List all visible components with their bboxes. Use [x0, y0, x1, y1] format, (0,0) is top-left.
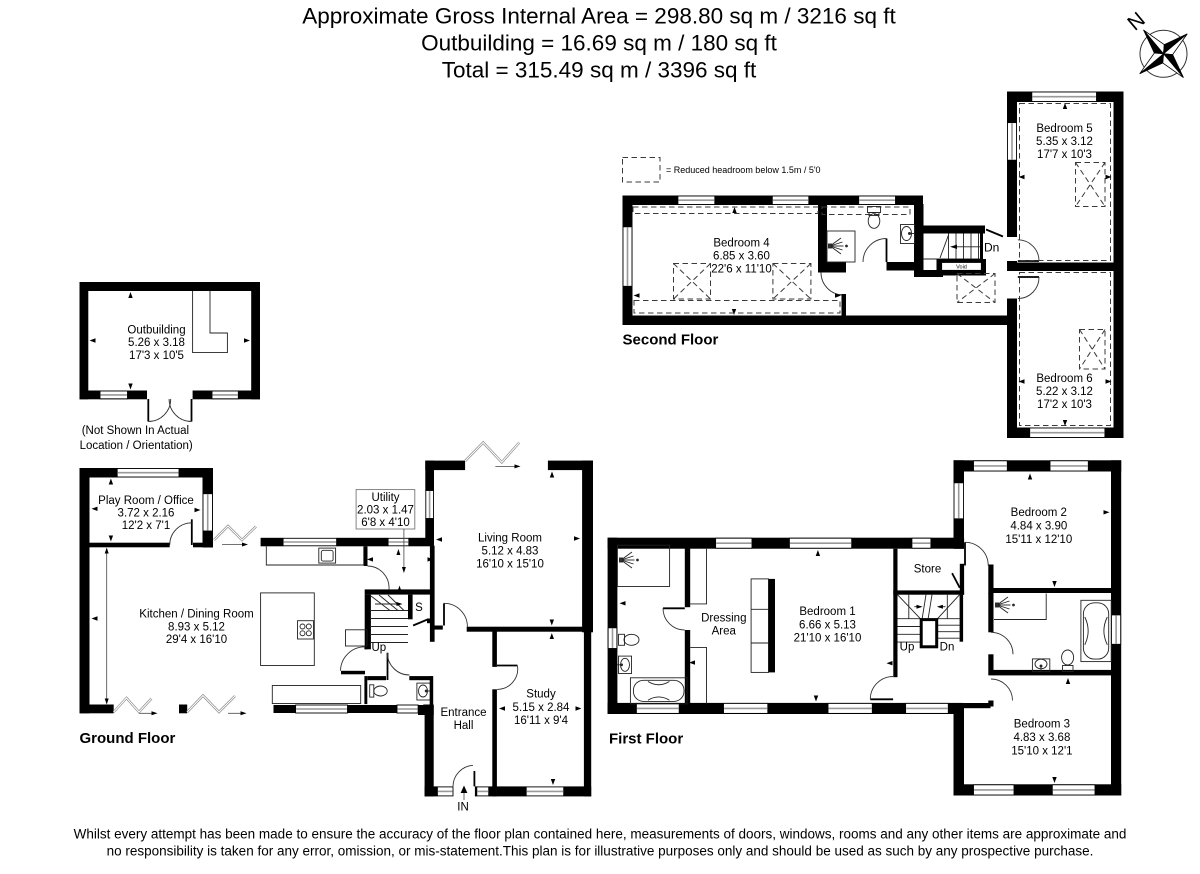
- svg-text:Bedroom 5: Bedroom 5: [1036, 123, 1092, 135]
- svg-text:17'3 x 10'5: 17'3 x 10'5: [129, 350, 184, 362]
- svg-text:5.15 x 2.84: 5.15 x 2.84: [513, 702, 571, 714]
- svg-text:Hall: Hall: [454, 720, 474, 732]
- svg-text:Bedroom 2: Bedroom 2: [1011, 507, 1067, 519]
- svg-text:17'2 x 10'3: 17'2 x 10'3: [1037, 399, 1092, 411]
- svg-text:Outbuilding = 16.69 sq m / 180: Outbuilding = 16.69 sq m / 180 sq ft: [421, 31, 778, 56]
- svg-text:Up: Up: [900, 642, 915, 654]
- svg-text:16'11 x 9'4: 16'11 x 9'4: [514, 715, 569, 727]
- svg-text:5.22 x 3.12: 5.22 x 3.12: [1036, 386, 1093, 398]
- svg-text:Bedroom 3: Bedroom 3: [1014, 719, 1070, 731]
- svg-text:no responsibility is taken for: no responsibility is taken for any error…: [107, 844, 1094, 859]
- svg-text:Dn: Dn: [940, 642, 955, 654]
- svg-text:Bedroom 1: Bedroom 1: [799, 606, 855, 618]
- svg-text:Outbuilding: Outbuilding: [127, 325, 185, 337]
- svg-text:Bedroom 4: Bedroom 4: [713, 238, 770, 250]
- svg-text:8.93 x 5.12: 8.93 x 5.12: [168, 622, 225, 634]
- svg-text:2.03 x 1.47: 2.03 x 1.47: [357, 505, 414, 517]
- svg-text:Approximate Gross Internal Are: Approximate Gross Internal Area = 298.80…: [302, 4, 896, 29]
- svg-text:Void: Void: [956, 265, 967, 271]
- svg-text:Bedroom 6: Bedroom 6: [1036, 373, 1092, 385]
- svg-text:Living Room: Living Room: [478, 533, 542, 545]
- svg-text:Dressing: Dressing: [701, 613, 746, 625]
- svg-text:4.84 x 3.90: 4.84 x 3.90: [1010, 521, 1067, 533]
- svg-text:5.12 x 4.83: 5.12 x 4.83: [482, 546, 539, 558]
- svg-text:Ground Floor: Ground Floor: [80, 730, 176, 747]
- svg-text:4.83 x 3.68: 4.83 x 3.68: [1013, 732, 1070, 744]
- svg-text:Utility: Utility: [371, 492, 399, 504]
- svg-text:(Not Shown In Actual: (Not Shown In Actual: [82, 425, 189, 437]
- svg-text:15'11 x 12'10: 15'11 x 12'10: [1005, 534, 1072, 546]
- svg-text:S: S: [415, 602, 423, 614]
- svg-text:15'10 x 12'1: 15'10 x 12'1: [1011, 746, 1072, 758]
- svg-text:= Reduced headroom below 1.5m: = Reduced headroom below 1.5m / 5'0: [666, 165, 821, 175]
- svg-text:Dn: Dn: [984, 241, 999, 255]
- svg-text:17'7 x 10'3: 17'7 x 10'3: [1037, 149, 1092, 161]
- svg-text:Up: Up: [372, 642, 387, 654]
- svg-text:16'10 x 15'10: 16'10 x 15'10: [476, 559, 544, 571]
- svg-text:22'6 x 11'10: 22'6 x 11'10: [711, 264, 771, 276]
- svg-text:Location / Orientation): Location / Orientation): [80, 440, 193, 452]
- svg-text:29'4 x 16'10: 29'4 x 16'10: [166, 634, 227, 646]
- svg-text:Play Room / Office: Play Room / Office: [98, 495, 194, 507]
- svg-text:5.35 x 3.12: 5.35 x 3.12: [1036, 136, 1093, 148]
- svg-text:6.85 x 3.60: 6.85 x 3.60: [713, 251, 770, 263]
- svg-text:6'8 x 4'10: 6'8 x 4'10: [361, 517, 410, 529]
- svg-text:Area: Area: [712, 626, 737, 638]
- svg-text:21'10 x 16'10: 21'10 x 16'10: [794, 633, 862, 645]
- svg-text:First Floor: First Floor: [609, 731, 683, 748]
- svg-text:Study: Study: [526, 689, 556, 701]
- svg-text:IN: IN: [457, 802, 469, 814]
- svg-text:Total = 315.49 sq m / 3396 sq: Total = 315.49 sq m / 3396 sq ft: [442, 58, 757, 83]
- svg-text:Entrance: Entrance: [440, 707, 486, 719]
- svg-text:Store: Store: [914, 564, 942, 576]
- svg-text:6.66 x 5.13: 6.66 x 5.13: [799, 620, 856, 632]
- svg-text:5.26 x 3.18: 5.26 x 3.18: [128, 337, 185, 349]
- svg-text:Kitchen / Dining Room: Kitchen / Dining Room: [139, 609, 253, 621]
- svg-text:Whilst every attempt has been: Whilst every attempt has been made to en…: [74, 827, 1127, 842]
- svg-text:12'2 x 7'1: 12'2 x 7'1: [122, 520, 171, 532]
- svg-text:Second Floor: Second Floor: [623, 332, 719, 349]
- svg-text:3.72 x 2.16: 3.72 x 2.16: [118, 508, 175, 520]
